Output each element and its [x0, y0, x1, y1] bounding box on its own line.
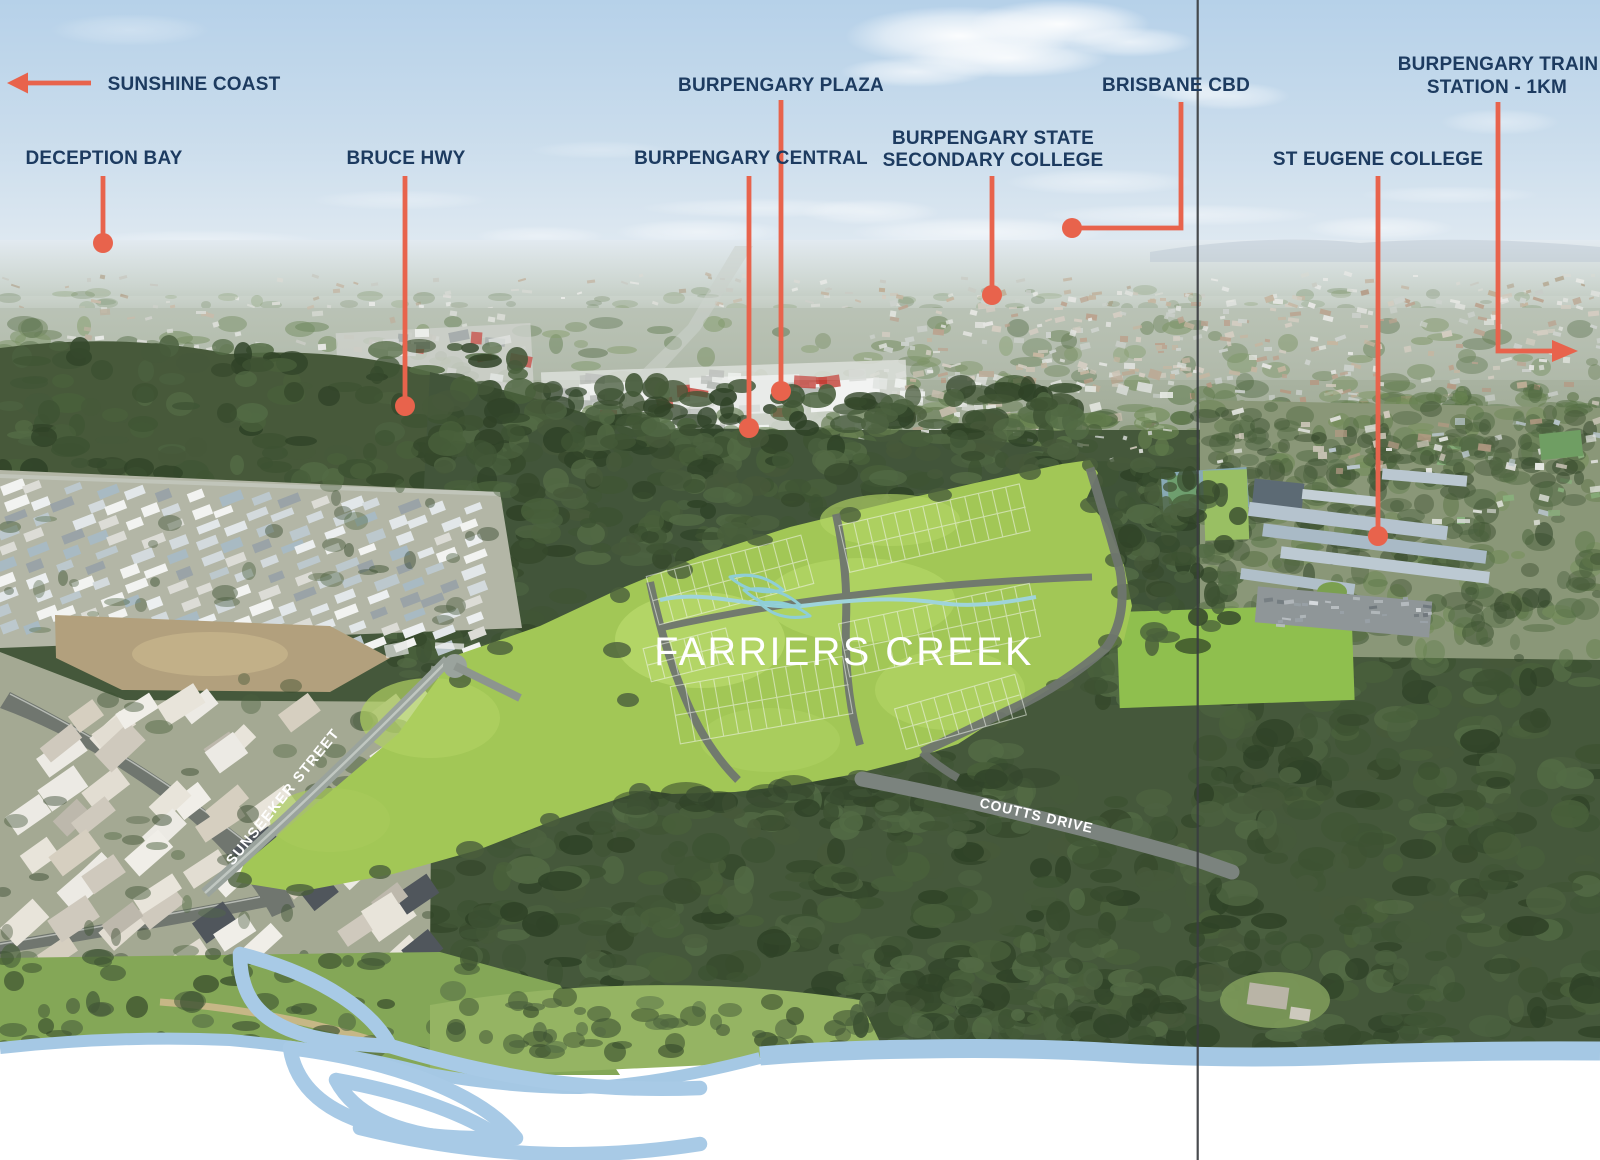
svg-text:BURPENGARY PLAZA: BURPENGARY PLAZA — [678, 75, 884, 96]
svg-text:BURPENGARY CENTRAL: BURPENGARY CENTRAL — [634, 148, 868, 169]
svg-text:BURPENGARY TRAIN: BURPENGARY TRAIN — [1398, 54, 1599, 75]
svg-text:ST EUGENE COLLEGE: ST EUGENE COLLEGE — [1273, 149, 1483, 170]
svg-text:BRISBANE CBD: BRISBANE CBD — [1102, 75, 1250, 96]
svg-text:STATION - 1KM: STATION - 1KM — [1427, 77, 1567, 98]
svg-text:FARRIERS CREEK: FARRIERS CREEK — [654, 630, 1034, 674]
svg-text:SUNSHINE COAST: SUNSHINE COAST — [108, 74, 281, 95]
svg-text:BRUCE HWY: BRUCE HWY — [347, 148, 466, 169]
svg-text:BURPENGARY STATE: BURPENGARY STATE — [892, 128, 1094, 149]
svg-text:SECONDARY COLLEGE: SECONDARY COLLEGE — [883, 150, 1104, 171]
svg-text:DECEPTION BAY: DECEPTION BAY — [25, 148, 182, 169]
